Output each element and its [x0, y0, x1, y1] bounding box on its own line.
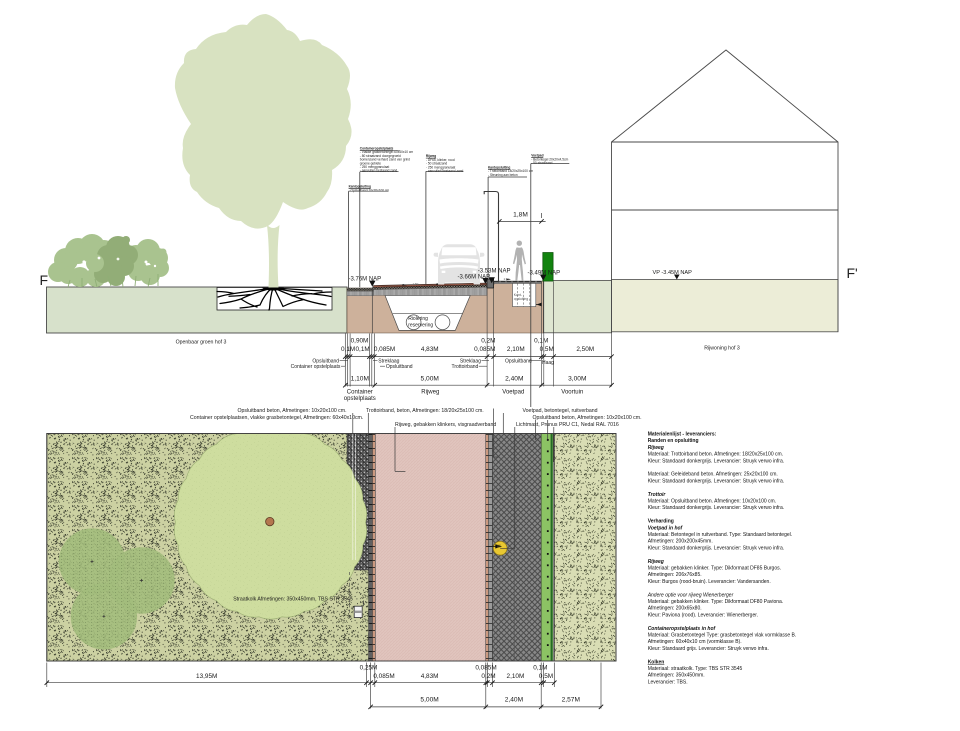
svg-text:Rijweg, gebakken klinkers, vis: Rijweg, gebakken klinkers, visgraadverba… — [395, 422, 496, 428]
svg-text:Rijwoning hof 3: Rijwoning hof 3 — [704, 346, 740, 352]
svg-text:2,10M: 2,10M — [507, 346, 525, 353]
svg-text:0,2M: 0,2M — [481, 673, 495, 680]
svg-text:5,00M: 5,00M — [420, 697, 438, 704]
svg-text:1,10M: 1,10M — [351, 375, 369, 382]
svg-text:0,5M: 0,5M — [539, 673, 553, 680]
svg-text:0,25M: 0,25M — [360, 664, 378, 671]
svg-text:Lichtmast, Prunus PRU C1, Neda: Lichtmast, Prunus PRU C1, Nedal RAL 7016 — [516, 422, 619, 428]
svg-text:Trottoir: Trottoir — [648, 492, 667, 498]
svg-text:2,57M: 2,57M — [562, 697, 580, 704]
svg-text:0,085M: 0,085M — [373, 673, 394, 680]
svg-text:Afmetingen: 350x450mm.: Afmetingen: 350x450mm. — [648, 673, 705, 679]
svg-text:Trottoirband: Trottoirband — [452, 364, 479, 370]
svg-text:0,085M: 0,085M — [374, 346, 395, 353]
svg-text:Materiaal: gebakken klinker. T: Materiaal: gebakken klinker. Type: Dikfo… — [648, 566, 781, 572]
svg-text:Containeropstelplaats in hof: Containeropstelplaats in hof — [648, 626, 717, 632]
svg-text:0,1M: 0,1M — [356, 346, 370, 353]
svg-text:0,2M: 0,2M — [481, 338, 495, 345]
svg-text:- 50 straatzand: - 50 straatzand — [531, 161, 552, 165]
svg-text:Container opstelplaatsen, vlak: Container opstelplaatsen, vlakke grasbet… — [190, 415, 363, 421]
svg-text:- aanvullen bestaand zand: - aanvullen bestaand zand — [426, 169, 464, 173]
svg-text:VP -3.45M NAP: VP -3.45M NAP — [653, 270, 693, 276]
svg-text:Opsluitband: Opsluitband — [505, 358, 532, 364]
svg-text:13,95M: 13,95M — [196, 673, 217, 680]
svg-text:Materiaal: Trottoirband beton.: Materiaal: Trottoirband beton. Afmetinge… — [648, 452, 783, 458]
svg-text:Afmetingen: 200x65x80.: Afmetingen: 200x65x80. — [648, 606, 702, 612]
svg-text:5,00M: 5,00M — [421, 375, 439, 382]
svg-text:Voortuin: Voortuin — [561, 390, 583, 396]
svg-text:- Steuning aan beton: - Steuning aan beton — [488, 173, 518, 177]
svg-text:Materialenlijst - leveranciers: Materialenlijst - leveranciers: — [648, 432, 717, 438]
svg-text:Voetpad in hof: Voetpad in hof — [648, 525, 684, 531]
svg-text:Container: Container — [347, 390, 373, 396]
svg-text:Kleur: Burgos (rood-bruin). Le: Kleur: Burgos (rood-bruin). Leverancier:… — [648, 579, 771, 585]
svg-text:2,10M: 2,10M — [507, 673, 525, 680]
svg-text:Materiaal: gebakken klinker. T: Materiaal: gebakken klinker. Type: Dikfo… — [648, 599, 784, 605]
svg-text:0,1M: 0,1M — [534, 338, 548, 345]
svg-text:4,83M: 4,83M — [421, 673, 439, 680]
svg-text:-3.53M NAP: -3.53M NAP — [478, 269, 511, 275]
svg-text:1,8M: 1,8M — [513, 212, 528, 219]
svg-text:Haag: Haag — [542, 360, 554, 366]
svg-text:0,1M: 0,1M — [533, 664, 547, 671]
svg-text:Kleur: Standaard donkergrijs.: Kleur: Standaard donkergrijs. Leverancie… — [648, 458, 784, 464]
svg-text:Kleur: Standaard donkergrijs.: Kleur: Standaard donkergrijs. Leverancie… — [648, 545, 784, 551]
svg-text:Materiaal: Geleideband beton.: Materiaal: Geleideband beton. Afmetingen… — [648, 472, 778, 478]
svg-text:Materiaal: Grasbetontegel Type: Materiaal: Grasbetontegel Type: grasbeto… — [648, 633, 797, 639]
svg-text:Materiaal: straatkolk. Type: T: Materiaal: straatkolk. Type: TBS STR 354… — [648, 666, 743, 672]
svg-text:opsluiting: opsluiting — [514, 297, 528, 301]
svg-text:Openbaar groen hof 3: Openbaar groen hof 3 — [176, 340, 227, 346]
svg-text:0,085M: 0,085M — [475, 664, 496, 671]
svg-text:- aanvullen bestaand zand: - aanvullen bestaand zand — [360, 169, 398, 173]
svg-text:2,40M: 2,40M — [505, 697, 523, 704]
svg-text:0,5M: 0,5M — [540, 346, 554, 353]
svg-text:Kleur: Paviona (rood). Leveran: Kleur: Paviona (rood). Leverancier: Wien… — [648, 612, 758, 618]
svg-text:Container opstelplaats: Container opstelplaats — [291, 364, 341, 370]
svg-text:0,085M: 0,085M — [474, 346, 495, 353]
svg-text:1:50: 1:50 — [413, 282, 419, 286]
svg-text:Opsluitband beton, Afmetingen:: Opsluitband beton, Afmetingen: 10x20x100… — [238, 408, 347, 414]
svg-text:Trottoirband, beton, Afmetinge: Trottoirband, beton, Afmetingen: 18/20x2… — [366, 408, 484, 414]
svg-text:Voetpad: Voetpad — [502, 390, 524, 396]
svg-text:Opsluitband: Opsluitband — [386, 364, 413, 370]
svg-text:- Opsluitband 10x20x100 cm: - Opsluitband 10x20x100 cm — [349, 188, 390, 192]
svg-text:opstelplaats: opstelplaats — [344, 396, 376, 402]
svg-text:Voetpad, betontegel, ruitverba: Voetpad, betontegel, ruitverband — [523, 408, 598, 414]
svg-text:Leverancier: TBS.: Leverancier: TBS. — [648, 679, 688, 685]
svg-text:Kleur: Standaard grijs. Levera: Kleur: Standaard grijs. Leverancier: Str… — [648, 646, 769, 652]
svg-text:Andere optie voor rijweg Wiene: Andere optie voor rijweg Wienerberger — [647, 592, 734, 598]
svg-text:Materiaal: Opsluitband beton.: Materiaal: Opsluitband beton. Afmetingen… — [648, 499, 776, 505]
svg-text:Materiaal: Betontegel in ruitv: Materiaal: Betontegel in ruitverband. Ty… — [648, 532, 792, 538]
svg-text:Straatkolk Afmetingen: 350x450: Straatkolk Afmetingen: 350x450mm, TBS ST… — [233, 596, 353, 602]
svg-text:0,90M: 0,90M — [351, 338, 369, 345]
svg-text:1:50: 1:50 — [504, 277, 510, 281]
svg-text:Verharding: Verharding — [648, 519, 674, 525]
svg-text:Kleur: Standaard donkergrijs.: Kleur: Standaard donkergrijs. Leverancie… — [648, 478, 784, 484]
svg-text:Kleur: Standaard donkergrijs.: Kleur: Standaard donkergrijs. Leverancie… — [648, 505, 784, 511]
svg-text:Kolken: Kolken — [648, 659, 665, 665]
svg-text:3,00M: 3,00M — [568, 375, 586, 382]
svg-text:2,40M: 2,40M — [505, 375, 523, 382]
svg-text:0,1M: 0,1M — [341, 346, 355, 353]
svg-text:Randen en opsluiting: Randen en opsluiting — [648, 438, 699, 444]
svg-text:Rijweg: Rijweg — [648, 445, 664, 451]
svg-text:Riolering: Riolering — [408, 316, 428, 322]
svg-text:4,83M: 4,83M — [421, 346, 439, 353]
svg-text:-3.76M NAP: -3.76M NAP — [349, 277, 382, 283]
svg-text:reservering: reservering — [408, 322, 433, 328]
svg-text:Afmetingen: 200x200x45mm.: Afmetingen: 200x200x45mm. — [648, 539, 713, 545]
svg-text:Afmetingen: 206x76x85.: Afmetingen: 206x76x85. — [648, 572, 702, 578]
svg-text:2,50M: 2,50M — [576, 346, 594, 353]
svg-text:Rijweg: Rijweg — [421, 390, 439, 396]
svg-text:Opsluitband beton, Afmetingen:: Opsluitband beton, Afmetingen: 10x20x100… — [533, 415, 642, 421]
svg-text:Afmetingen: 60x40x10 cm (vormk: Afmetingen: 60x40x10 cm (vormklasse B). — [648, 639, 742, 645]
svg-text:Rijweg: Rijweg — [648, 559, 664, 565]
svg-text:F': F' — [847, 265, 858, 281]
svg-text:F: F — [40, 272, 49, 288]
